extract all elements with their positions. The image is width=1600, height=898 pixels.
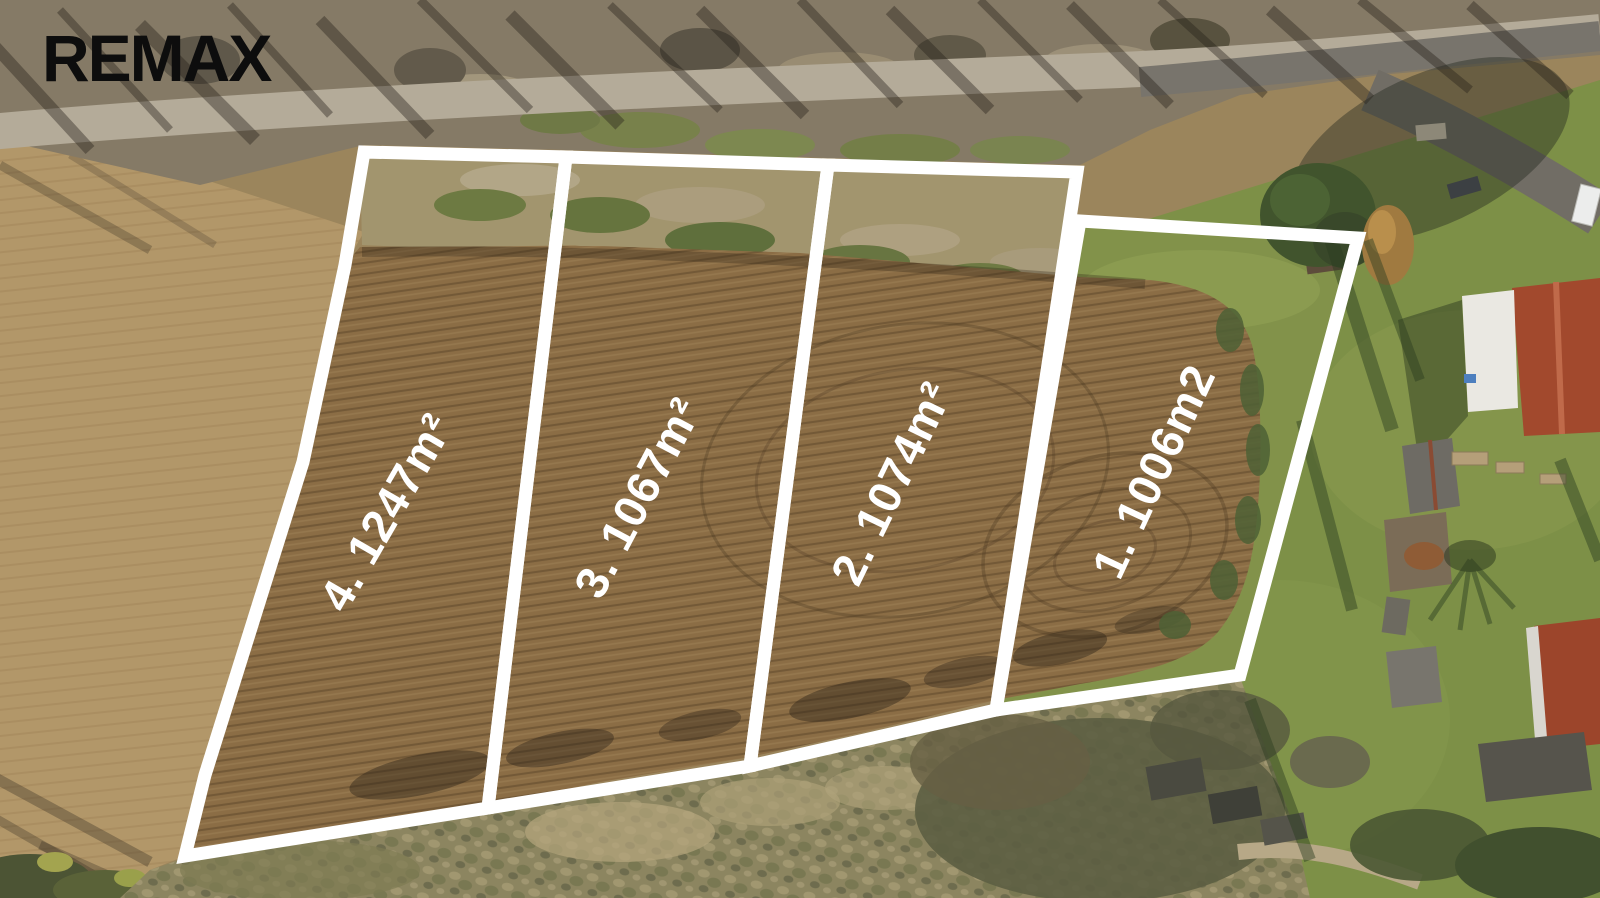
remax-logo: REMAX [42, 21, 272, 95]
garden-bed [1496, 462, 1524, 473]
dark-barn [1478, 732, 1592, 802]
white-roof-house [1462, 290, 1518, 412]
aerial-plot-photo: 4. 1247m² 3. 1067m² 2. 1074m² 1. 1006m2 … [0, 0, 1600, 898]
background-terrain [0, 0, 1600, 898]
garden-bed [1452, 452, 1488, 465]
